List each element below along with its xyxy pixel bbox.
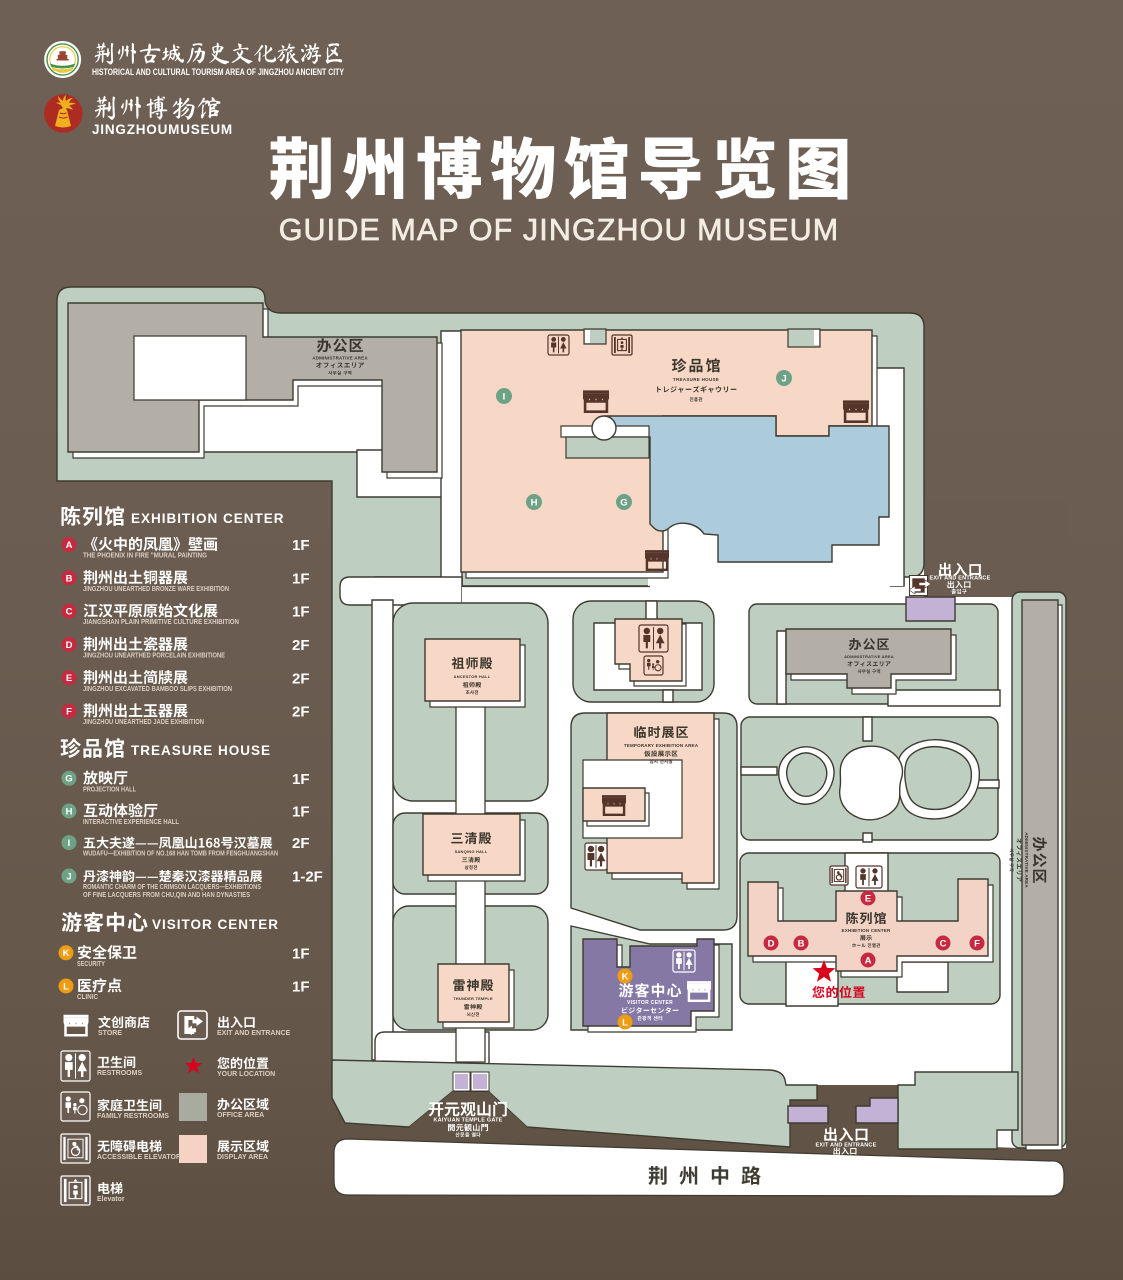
svg-text:JINGZHOU UNEARTHED JADE EXHIBI: JINGZHOU UNEARTHED JADE EXHIBITION [83, 719, 204, 726]
svg-text:1F: 1F [292, 945, 310, 962]
svg-text:D: D [768, 938, 775, 949]
svg-text:2F: 2F [292, 637, 310, 654]
svg-text:FAMILY RESTROOMS: FAMILY RESTROOMS [97, 1113, 169, 1120]
svg-text:EXIT AND ENTRANCE: EXIT AND ENTRANCE [816, 1143, 877, 1149]
svg-text:C: C [66, 607, 73, 618]
svg-text:JINGZHOU UNEARTHED PORCELAIN E: JINGZHOU UNEARTHED PORCELAIN EXHIBITIONE [83, 653, 225, 660]
svg-text:I: I [68, 838, 71, 849]
svg-text:2F: 2F [292, 670, 310, 687]
svg-text:J: J [781, 373, 786, 384]
svg-text:YOUR LOCATION: YOUR LOCATION [217, 1071, 275, 1078]
svg-text:H: H [66, 806, 73, 817]
svg-text:H: H [531, 497, 538, 508]
svg-text:G: G [620, 497, 627, 508]
svg-text:OF FINE LACQUERS FROM CHU,QIN: OF FINE LACQUERS FROM CHU,QIN AND HAN DY… [83, 892, 250, 899]
svg-text:1F: 1F [292, 604, 310, 621]
svg-text:Elevator: Elevator [97, 1196, 125, 1203]
svg-text:D: D [66, 640, 73, 651]
svg-text:THE PHOENIX IN FIRE "MURAL PAI: THE PHOENIX IN FIRE "MURAL PAINTING [83, 553, 207, 560]
svg-text:GUIDE MAP OF JINGZHOU MUSEUM: GUIDE MAP OF JINGZHOU MUSEUM [279, 213, 840, 247]
svg-text:1F: 1F [292, 537, 310, 554]
svg-text:1-2F: 1-2F [292, 869, 323, 886]
svg-text:1F: 1F [292, 570, 310, 587]
svg-text:ROMANTIC CHARM OF THE CRIMSON: ROMANTIC CHARM OF THE CRIMSON LACQUERS—E… [83, 884, 261, 891]
svg-text:INTERACTIVE EXPERIENCE HALL: INTERACTIVE EXPERIENCE HALL [83, 819, 180, 826]
svg-text:VISITOR CENTER: VISITOR CENTER [627, 1000, 673, 1006]
svg-text:DISPLAY AREA: DISPLAY AREA [217, 1154, 268, 1161]
svg-text:PROJECTION HALL: PROJECTION HALL [83, 786, 137, 793]
svg-text:A: A [66, 540, 73, 551]
svg-text:C: C [940, 938, 947, 949]
svg-text:1F: 1F [292, 771, 310, 788]
svg-text:STORE: STORE [98, 1030, 122, 1037]
svg-text:EXIT AND ENTRANCE: EXIT AND ENTRANCE [217, 1030, 291, 1037]
svg-text:L: L [63, 981, 69, 992]
svg-text:EXHIBITION CENTER: EXHIBITION CENTER [131, 511, 285, 526]
svg-text:TREASURE HOUSE: TREASURE HOUSE [673, 377, 719, 382]
svg-text:2F: 2F [292, 704, 310, 721]
svg-text:L: L [622, 1017, 628, 1028]
svg-text:JINGZHOUMUSEUM: JINGZHOUMUSEUM [92, 122, 233, 137]
svg-text:VISITOR CENTER: VISITOR CENTER [152, 917, 279, 932]
svg-text:A: A [865, 955, 872, 966]
svg-text:J: J [66, 871, 71, 882]
svg-text:EXIT AND ENTRANCE: EXIT AND ENTRANCE [930, 576, 991, 582]
svg-text:ADMINISTRATIVE AREA: ADMINISTRATIVE AREA [844, 654, 894, 659]
svg-text:B: B [66, 573, 73, 584]
svg-text:K: K [622, 971, 629, 982]
svg-text:B: B [798, 938, 805, 949]
svg-text:JINGZHOU UNEARTHED BRONZE WARE: JINGZHOU UNEARTHED BRONZE WARE EXHIBITIO… [83, 586, 229, 593]
svg-text:ANCESTOR HALL: ANCESTOR HALL [454, 674, 491, 679]
svg-text:E: E [66, 673, 72, 684]
svg-text:EXHIBITION CENTER: EXHIBITION CENTER [842, 928, 891, 933]
svg-text:JIANGSHAN PLAIN PRIMITIVE CULT: JIANGSHAN PLAIN PRIMITIVE CULTURE EXHIBI… [83, 619, 239, 626]
svg-text:2F: 2F [292, 835, 310, 852]
svg-text:THUNDER TEMPLE: THUNDER TEMPLE [453, 996, 493, 1001]
svg-text:RESTROOMS: RESTROOMS [97, 1070, 142, 1077]
svg-text:TEMPORARY EXHIBITION AREA: TEMPORARY EXHIBITION AREA [624, 743, 699, 748]
svg-text:K: K [63, 948, 70, 959]
svg-text:CLINIC: CLINIC [77, 994, 98, 1001]
svg-text:F: F [66, 707, 72, 718]
svg-text:SECURITY: SECURITY [77, 961, 105, 968]
svg-text:OFFICE AREA: OFFICE AREA [217, 1112, 264, 1119]
svg-text:ACCESSIBLE ELEVATOR: ACCESSIBLE ELEVATOR [97, 1154, 181, 1161]
svg-text:KAIYUAN TEMPLE GATE: KAIYUAN TEMPLE GATE [433, 1118, 502, 1124]
svg-text:JINGZHOU EXCAVATED BAMBOO SLIP: JINGZHOU EXCAVATED BAMBOO SLIPS EXHIBITI… [83, 686, 232, 693]
svg-text:E: E [865, 893, 871, 904]
svg-text:F: F [974, 938, 980, 949]
svg-text:G: G [65, 774, 72, 785]
svg-text:WUDAFU—EXHIBITION OF NO.168 HA: WUDAFU—EXHIBITION OF NO.168 HAN TOMB FRO… [83, 851, 278, 858]
svg-text:HISTORICAL AND CULTURAL TOURIS: HISTORICAL AND CULTURAL TOURISM AREA OF … [92, 67, 344, 77]
svg-text:ADMINISTRATIVE AREA: ADMINISTRATIVE AREA [1024, 832, 1029, 888]
svg-text:SANQING HALL: SANQING HALL [455, 849, 488, 854]
svg-text:1F: 1F [292, 804, 310, 821]
svg-text:I: I [503, 391, 506, 402]
svg-text:TREASURE HOUSE: TREASURE HOUSE [131, 743, 271, 758]
svg-text:1F: 1F [292, 979, 310, 996]
svg-text:ADMINISTRATIVE AREA: ADMINISTRATIVE AREA [312, 356, 368, 361]
